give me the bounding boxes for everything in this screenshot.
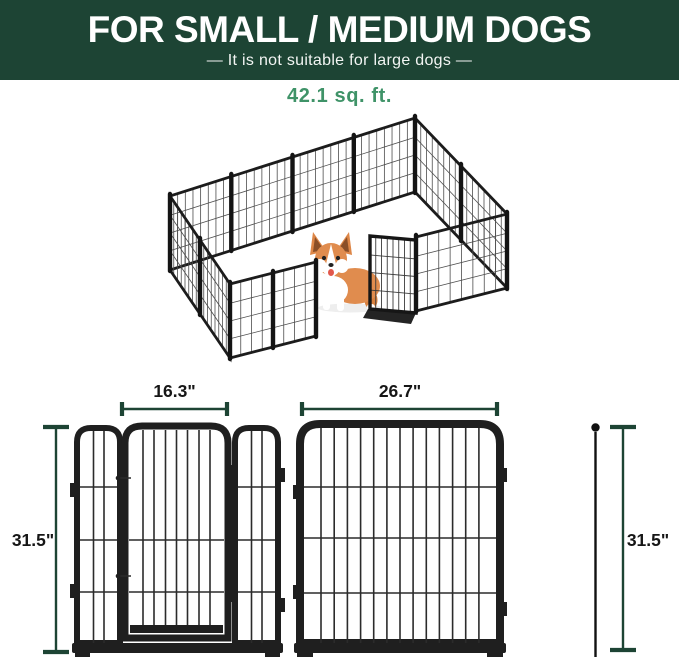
dog-front-leg [337, 296, 344, 311]
connector-tab [499, 468, 507, 482]
gate-right-section-frame [235, 428, 278, 643]
area-label: 42.1 sq. ft. [0, 84, 679, 108]
dog-front-leg [323, 295, 330, 310]
connector-tab [70, 584, 78, 598]
connector-tab [293, 485, 301, 499]
connector-tab [70, 483, 78, 497]
panel-foot [297, 653, 313, 657]
dog-nose [328, 263, 333, 267]
panel-width-label: 26.7" [379, 381, 421, 401]
dog-eye [336, 256, 340, 260]
panel-foot [487, 653, 503, 657]
dimension-diagrams: 31.5" 16.3" 26.7" [0, 380, 679, 657]
gate-width-label: 16.3" [153, 381, 195, 401]
ground-stake-head [591, 423, 599, 431]
product-infographic: { "banner": { "title": "FOR SMALL / MEDI… [0, 0, 679, 657]
connector-tab [293, 585, 301, 599]
hinge-pin [116, 574, 121, 579]
header-banner: FOR SMALL / MEDIUM DOGS — It is not suit… [0, 0, 679, 80]
gate-panel-diagram: 31.5" 16.3" [12, 381, 285, 657]
connector-tab [277, 468, 285, 482]
panel-foot [75, 653, 90, 657]
playpen-illustration [0, 112, 679, 380]
connector-tab [277, 598, 285, 612]
hinge-pin [116, 476, 121, 481]
regular-panel-base [294, 643, 506, 653]
gate-left-section-frame [77, 428, 120, 643]
banner-subtitle: — It is not suitable for large dogs — [0, 51, 679, 71]
gate-height-label: 31.5" [12, 530, 54, 550]
gate-door-bars [129, 430, 224, 626]
dog-tongue [328, 269, 334, 276]
connector-tab [499, 602, 507, 616]
dog-eye [322, 256, 326, 260]
banner-title: FOR SMALL / MEDIUM DOGS [0, 8, 679, 51]
panel-foot [265, 653, 280, 657]
panel-height-label: 31.5" [627, 530, 669, 550]
regular-panel-diagram: 26.7" 31.5" [293, 381, 669, 657]
gate-panel-base [72, 643, 283, 653]
